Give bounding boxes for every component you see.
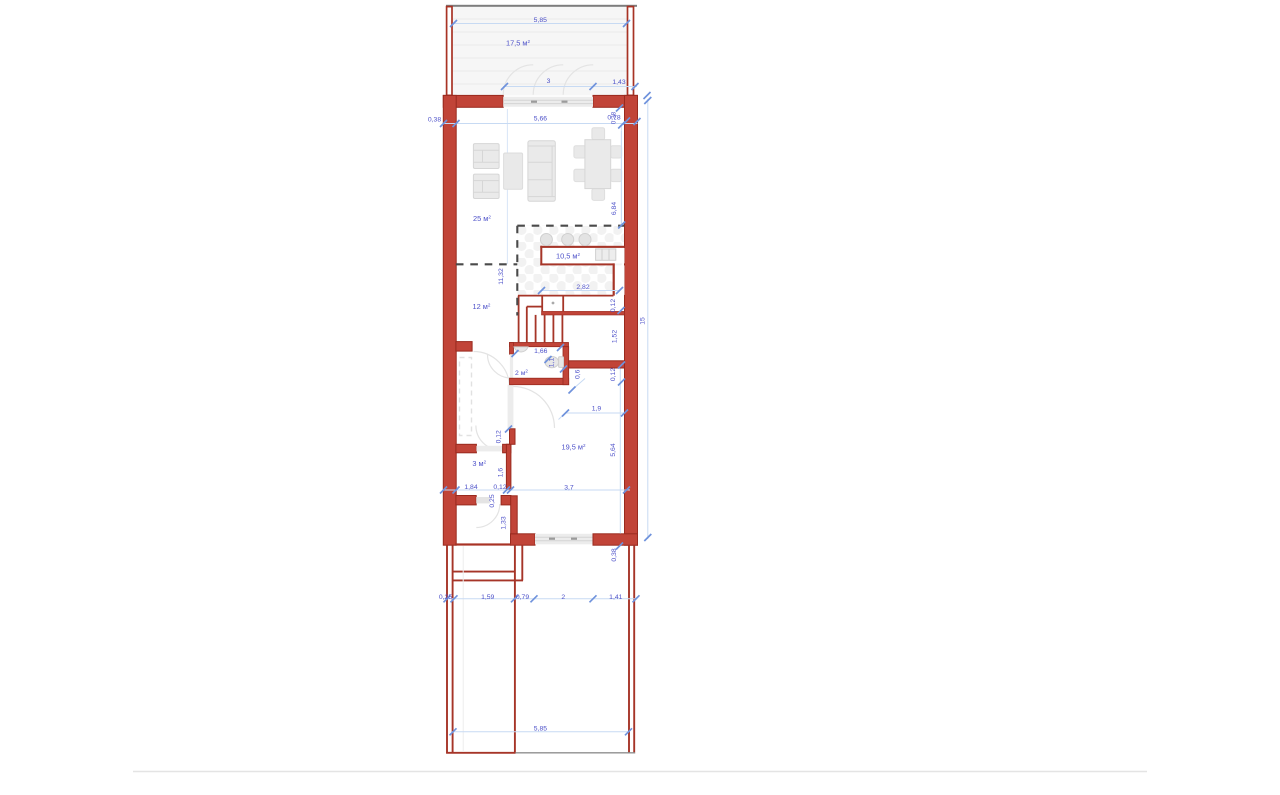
svg-text:2: 2 bbox=[561, 594, 565, 601]
svg-text:1,33: 1,33 bbox=[501, 516, 508, 529]
svg-text:0,12: 0,12 bbox=[610, 368, 617, 381]
svg-text:2,82: 2,82 bbox=[576, 284, 589, 291]
svg-text:5,64: 5,64 bbox=[610, 443, 617, 456]
svg-text:1,9: 1,9 bbox=[592, 406, 602, 413]
svg-text:19,5 м2: 19,5 м2 bbox=[561, 443, 586, 452]
svg-text:0,79: 0,79 bbox=[516, 594, 529, 601]
svg-text:0,12: 0,12 bbox=[610, 299, 617, 312]
svg-text:10,5 м2: 10,5 м2 bbox=[556, 251, 581, 260]
svg-text:11,32: 11,32 bbox=[498, 268, 505, 285]
svg-text:0,12: 0,12 bbox=[496, 430, 503, 443]
svg-text:5,85: 5,85 bbox=[534, 726, 547, 733]
svg-text:5,66: 5,66 bbox=[534, 116, 547, 123]
svg-text:1,41: 1,41 bbox=[609, 594, 622, 601]
svg-text:1,43: 1,43 bbox=[612, 79, 625, 86]
svg-text:0,6: 0,6 bbox=[575, 369, 582, 379]
svg-text:1,6: 1,6 bbox=[498, 468, 505, 478]
svg-text:0,38: 0,38 bbox=[428, 117, 441, 124]
svg-text:1,1: 1,1 bbox=[548, 358, 555, 368]
svg-text:5,85: 5,85 bbox=[534, 17, 547, 24]
svg-text:1,84: 1,84 bbox=[464, 484, 477, 491]
svg-text:1,59: 1,59 bbox=[481, 594, 494, 601]
svg-text:1,66: 1,66 bbox=[534, 348, 547, 355]
svg-text:1,52: 1,52 bbox=[611, 330, 618, 343]
svg-text:0,38: 0,38 bbox=[611, 111, 618, 124]
svg-text:0,38: 0,38 bbox=[611, 548, 618, 561]
svg-text:17,5 м2: 17,5 м2 bbox=[506, 39, 531, 48]
svg-text:15: 15 bbox=[640, 317, 647, 325]
svg-text:0,25: 0,25 bbox=[489, 494, 496, 507]
svg-text:3,7: 3,7 bbox=[564, 484, 574, 491]
svg-text:6,84: 6,84 bbox=[611, 202, 618, 215]
svg-text:0,12: 0,12 bbox=[493, 484, 506, 491]
svg-text:3: 3 bbox=[547, 78, 551, 85]
svg-text:0,25: 0,25 bbox=[439, 594, 452, 601]
